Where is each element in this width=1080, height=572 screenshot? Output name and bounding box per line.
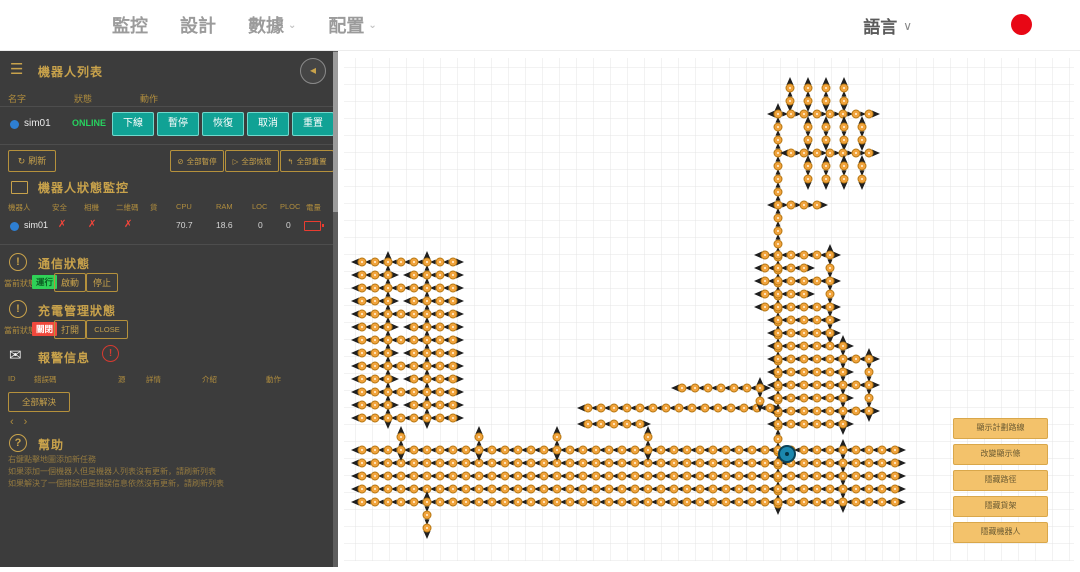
refresh-button[interactable]: ↻ 刷新: [8, 150, 56, 172]
sidebar: ☰ 機器人列表 ◂ 名字 狀態 動作 sim01 ONLINE 下線 暫停 恢復…: [0, 50, 338, 567]
help-line: 如果解決了一個錯誤但是錯誤信息依然沒有更新，請刷新列表: [8, 478, 332, 490]
column-header: 相機: [84, 202, 99, 213]
robot-action-button[interactable]: 重置: [292, 112, 334, 136]
sidebar-collapse-button[interactable]: ◂: [300, 58, 326, 84]
column-header: RAM: [216, 202, 233, 211]
red-status-dot: [1011, 14, 1032, 35]
robot-status-badge: ONLINE: [72, 118, 106, 128]
alert-circle-icon: !: [9, 253, 27, 271]
cpu-value: 70.7: [176, 220, 193, 230]
column-header: LOC: [252, 202, 267, 211]
bulk-action-icon: ↰: [287, 157, 293, 166]
robot-action-button[interactable]: 下線: [112, 112, 154, 136]
loc-value: 0: [258, 220, 263, 230]
nav-item[interactable]: 數據 ⌄: [248, 12, 296, 38]
robot-name: sim01: [24, 118, 51, 129]
qr-flag: ✗: [124, 219, 132, 230]
column-header: 介紹: [202, 374, 217, 385]
map-layer-button[interactable]: 隱藏機器人: [953, 522, 1048, 543]
pager-prev[interactable]: ‹: [10, 416, 14, 428]
divider: [0, 106, 338, 107]
charge-status-title: 充電管理狀態: [38, 302, 116, 319]
camera-flag: ✗: [88, 219, 96, 230]
sidebar-scrollbar[interactable]: [333, 50, 338, 567]
language-selector[interactable]: 語言 ∨: [863, 13, 912, 38]
alarm-pager: ‹ ›: [10, 416, 27, 428]
alarm-count-badge: !: [102, 345, 119, 362]
ram-value: 18.6: [216, 220, 233, 230]
divider: [0, 144, 338, 145]
column-header: 錯誤碼: [34, 374, 57, 385]
comm-start-button[interactable]: 啟動: [54, 273, 86, 292]
column-header: 二維碼: [116, 202, 139, 213]
help-text: 右鍵點擊地圖添加新任務如果添加一個機器人但是機器人列表沒有更新，請刷新列表如果解…: [8, 454, 332, 490]
monitor-icon: [11, 181, 28, 194]
bulk-action-button[interactable]: ⊘ 全部暫停: [170, 150, 224, 172]
help-line: 右鍵點擊地圖添加新任務: [8, 454, 332, 466]
chevron-down-icon: ∨: [903, 19, 912, 33]
battery-icon: [304, 221, 321, 231]
status-monitor-title: 機器人狀態監控: [38, 179, 129, 196]
column-header: 機器人: [8, 202, 31, 213]
help-line: 如果添加一個機器人但是機器人列表沒有更新，請刷新列表: [8, 466, 332, 478]
top-bar: 監控 設計 數據 ⌄ 配置 ⌄ 語言 ∨: [0, 0, 1080, 51]
alarm-title: 報警信息: [38, 349, 90, 366]
column-header: 動作: [266, 374, 281, 385]
robot-dot: [10, 120, 19, 129]
column-header: ID: [8, 374, 16, 383]
comm-status-title: 通信狀態: [38, 255, 90, 272]
column-header: 電量: [306, 202, 321, 213]
bulk-action-button[interactable]: ↰ 全部重置: [280, 150, 334, 172]
map-canvas[interactable]: 顯示計劃路線 改變顯示條 隱藏路徑 隱藏貨架 隱藏機器人: [338, 50, 1080, 567]
nav-item[interactable]: 配置 ⌄: [328, 12, 376, 38]
robot-action-button[interactable]: 暫停: [157, 112, 199, 136]
robot-action-button[interactable]: 取消: [247, 112, 289, 136]
robot-action-button[interactable]: 恢復: [202, 112, 244, 136]
column-header: 貨: [150, 202, 158, 213]
nav-item[interactable]: 監控: [112, 12, 148, 38]
map-layer-button[interactable]: 隱藏路徑: [953, 470, 1048, 491]
bulk-action-icon: ⊘: [177, 157, 183, 166]
chevron-down-icon: ⌄: [288, 20, 296, 31]
charge-open-button[interactable]: 打開: [54, 320, 86, 339]
comm-stop-button[interactable]: 停止: [86, 273, 118, 292]
help-title: 幫助: [38, 436, 64, 453]
nav-item[interactable]: 設計: [180, 12, 216, 38]
ploc-value: 0: [286, 220, 291, 230]
safety-flag: ✗: [58, 219, 66, 230]
mail-icon: ✉: [9, 346, 22, 364]
robot-dot: [10, 222, 19, 231]
map-layer-button[interactable]: 隱藏貨架: [953, 496, 1048, 517]
charge-close-button[interactable]: CLOSE: [86, 320, 128, 339]
refresh-icon: ↻: [18, 153, 26, 169]
alert-circle-icon: !: [9, 300, 27, 318]
map-layer-buttons: 顯示計劃路線 改變顯示條 隱藏路徑 隱藏貨架 隱藏機器人: [953, 418, 1048, 543]
map-layer-button[interactable]: 改變顯示條: [953, 444, 1048, 465]
question-circle-icon: ?: [9, 434, 27, 452]
column-header: 詳情: [146, 374, 161, 385]
column-header: 源: [118, 374, 126, 385]
pager-next[interactable]: ›: [24, 416, 28, 428]
list-icon: ☰: [10, 60, 23, 78]
resolve-all-button[interactable]: 全部解決: [8, 392, 70, 412]
bulk-action-icon: ▷: [233, 157, 239, 166]
bulk-action-buttons: ⊘ 全部暫停 ▷ 全部恢復 ↰ 全部重置: [170, 150, 334, 172]
robot-list-title: 機器人列表: [38, 63, 103, 80]
column-header: 安全: [52, 202, 67, 213]
column-header: CPU: [176, 202, 192, 211]
divider: [0, 244, 338, 245]
chevron-down-icon: ⌄: [368, 20, 376, 31]
column-header: PLOC: [280, 202, 300, 211]
robot-action-buttons: 下線 暫停 恢復 取消 重置: [112, 112, 334, 136]
map-layer-button[interactable]: 顯示計劃路線: [953, 418, 1048, 439]
bulk-action-button[interactable]: ▷ 全部恢復: [225, 150, 279, 172]
main-nav: 監控 設計 數據 ⌄ 配置 ⌄: [112, 0, 377, 50]
